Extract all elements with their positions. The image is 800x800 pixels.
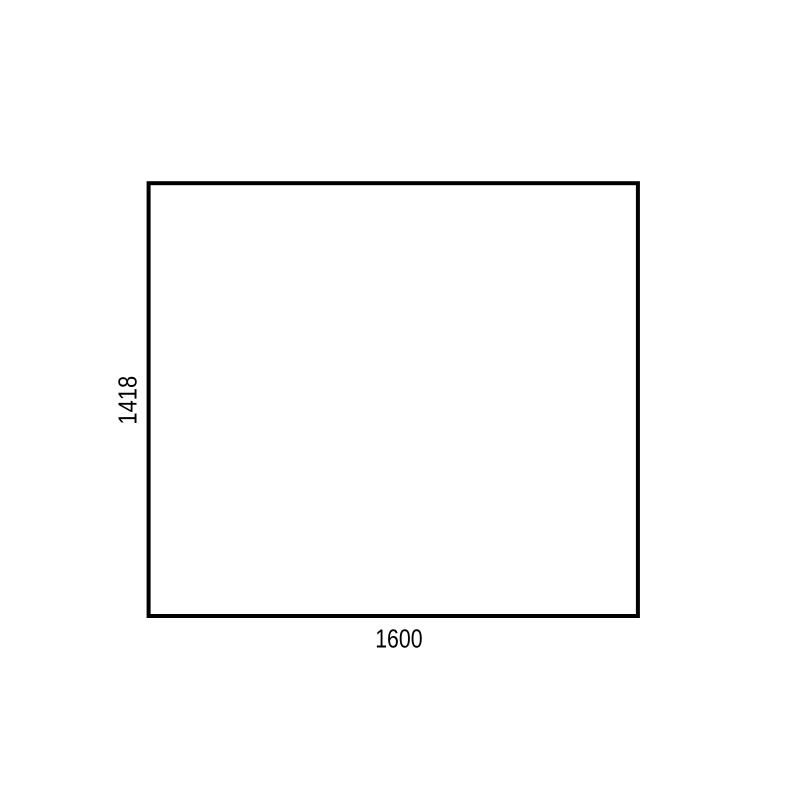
svg-text:1418: 1418: [112, 376, 142, 425]
svg-text:1600: 1600: [375, 623, 422, 653]
